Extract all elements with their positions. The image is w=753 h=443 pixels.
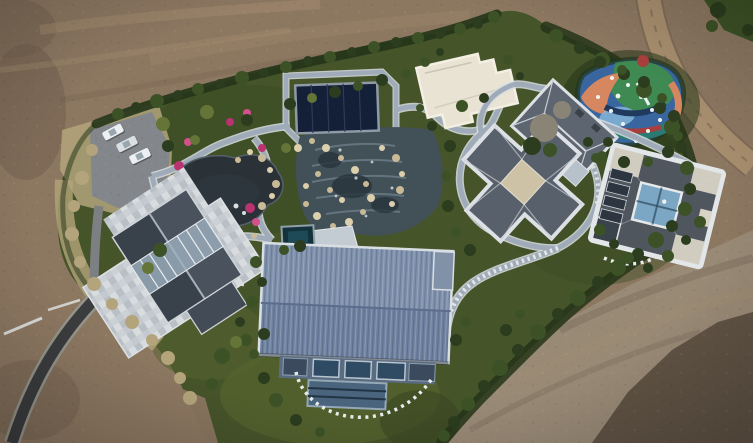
vignette xyxy=(0,0,753,443)
aerial-photo xyxy=(0,0,753,443)
aerial-photo-canvas xyxy=(0,0,753,443)
